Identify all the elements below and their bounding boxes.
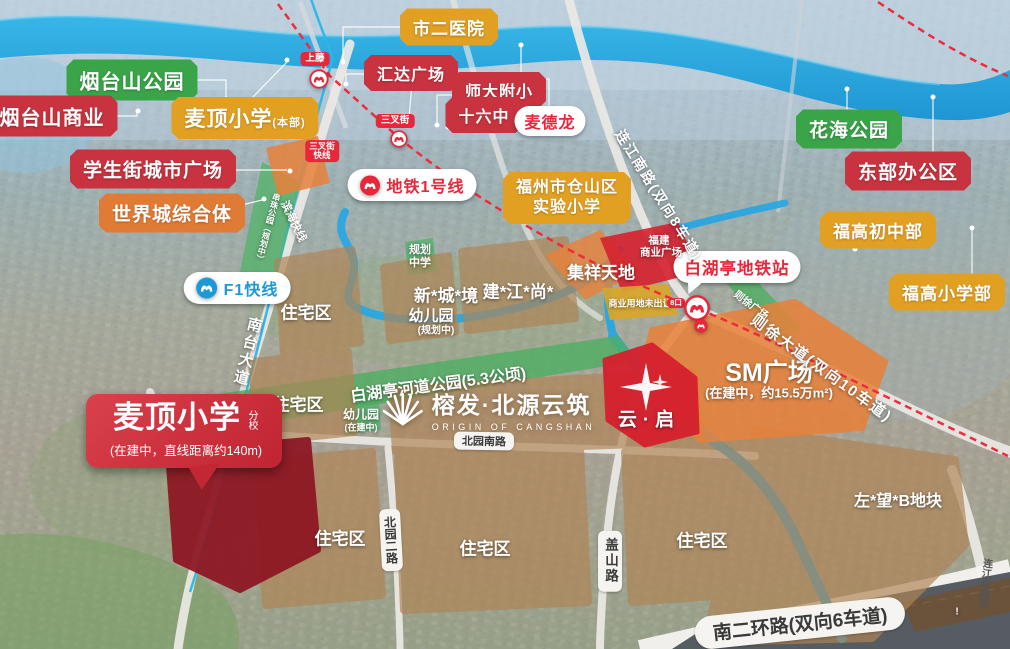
label-fujian-plaza-line2: 商业广场 [640, 245, 682, 260]
station-badge-shangteng: 上藤 [300, 52, 329, 66]
label-cangshan-lab-school: 福州市仓山区 实验小学 [503, 172, 631, 224]
label-metro-mart-text: 麦德龙 [524, 109, 575, 133]
project-logo-mark [383, 390, 423, 428]
label-exclamation: ! [955, 607, 958, 618]
station-icon-shangteng [309, 69, 329, 89]
f1-metro-icon [196, 277, 218, 299]
label-metro-line1-text: 地铁1号线 [387, 173, 465, 197]
sanchajie-express-line2: 快线 [313, 151, 330, 160]
label-huida-plaza: 汇达广场 [364, 55, 458, 91]
label-student-street-plaza: 学生街城市广场 [70, 150, 236, 189]
label-kindergarten-construction-note: (在建中) [345, 421, 378, 434]
label-sm-plaza-note: (在建中，约15.5万m²) [705, 383, 833, 402]
station-icon-baihuting [684, 295, 711, 322]
label-sixteen-middle: 十六中 [445, 97, 522, 133]
label-cangshan-lab-school-line1: 福州市仓山区 [516, 178, 618, 198]
label-commercial-unsold: 商业用地未出让 [608, 297, 671, 310]
label-metro-mart: 麦德龙 [514, 106, 585, 136]
callout-title: 麦顶小学 [113, 402, 241, 435]
label-metro-line1: 地铁1号线 [348, 169, 477, 201]
label-cangshan-lab-school-line2: 实验小学 [516, 198, 618, 218]
label-f1-express: F1快线 [184, 272, 291, 304]
label-jianjiangshang: 建*江*尚* [483, 278, 554, 303]
label-kindergarten-planned-note: (规划中) [418, 322, 455, 337]
metro-logo-icon [360, 175, 381, 196]
label-maiding-main-text: 麦顶小学 [184, 108, 272, 131]
maiding-branch-callout: 麦顶小学 分校 (在建中，直线距离约140m) [86, 394, 282, 468]
label-zuowang-plot: 左*望*B地块 [854, 487, 942, 511]
label-yantai-commercial: 烟台山商业 [0, 96, 118, 137]
label-fugao-primary: 福高小学部 [889, 274, 1005, 311]
label-residential-3: 住宅区 [315, 525, 366, 550]
label-residential-4: 住宅区 [460, 535, 511, 560]
project-logo-cn: 榕发·北源云筑 [432, 386, 596, 420]
callout-tail [188, 462, 223, 490]
station-badge-sanchajie: 三叉街 [376, 114, 415, 128]
label-planned-school: 规划 中学 [409, 244, 431, 270]
station-badge-sanchajie-express: 三叉街 快线 [305, 140, 339, 162]
project-logo: 榕发·北源云筑 ORIGIN OF CANGSHAN [383, 386, 596, 432]
callout-branch: 分校 [244, 410, 259, 430]
exit-badge: 8口 [667, 298, 685, 308]
label-planned-school-line2: 中学 [409, 257, 431, 270]
road-label-gaishan: 盖山路 [598, 531, 622, 592]
label-maiding-main-tag: (本部) [272, 117, 305, 129]
label-maiding-main: 麦顶小学(本部) [171, 97, 318, 139]
label-east-office: 东部办公区 [845, 152, 971, 191]
label-residential-5: 住宅区 [677, 527, 728, 552]
label-residential-1: 住宅区 [281, 299, 332, 324]
station-icon-sanchajie [390, 130, 408, 148]
label-flower-sea-park: 花海公园 [796, 110, 902, 149]
road-label-beiyuan-2: 北园二路 [379, 508, 403, 571]
station-subicon-baihuting [694, 319, 708, 333]
label-f1-express-text: F1快线 [224, 276, 279, 300]
label-jixiang: 集祥天地 [567, 259, 635, 284]
project-logo-en: ORIGIN OF CANGSHAN [432, 422, 596, 432]
label-baihuting-text: 白湖亭地铁站 [685, 255, 790, 279]
road-label-beiyuan-south: 北园南路 [454, 431, 514, 450]
label-yunqi: 云·启 [618, 405, 680, 432]
label-city2-hospital: 市二医院 [400, 9, 498, 46]
label-planned-school-line1: 规划 [409, 244, 431, 257]
callout-note: (在建中，直线距离约140m) [98, 440, 274, 459]
aerial-location-map: 烟台山公园 烟台山商业 麦顶小学(本部) 学生街城市广场 世界城综合体 市二医院… [0, 0, 1010, 649]
label-world-city: 世界城综合体 [99, 194, 245, 233]
label-xinchengjing: 新*城*境 [414, 282, 478, 307]
label-yantai-park: 烟台山公园 [67, 60, 198, 101]
label-fugao-junior: 福高初中部 [820, 212, 936, 249]
